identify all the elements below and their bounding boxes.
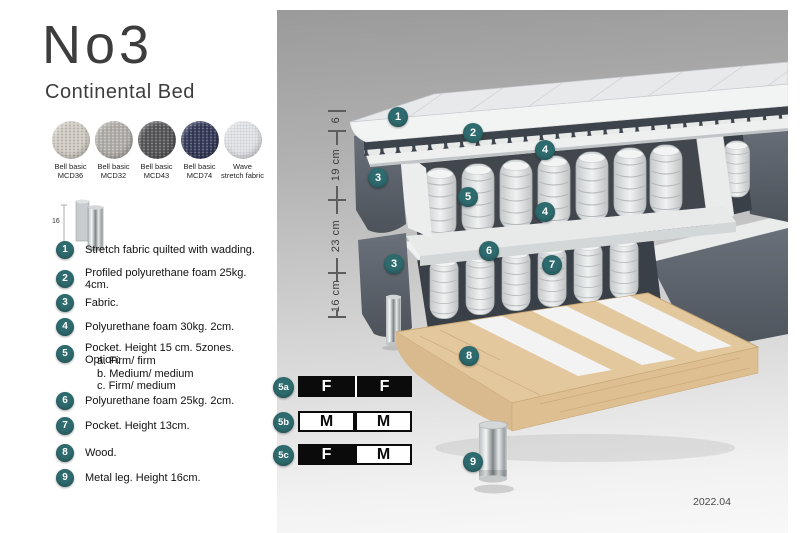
legend-text: Wood. [85,447,117,459]
fabric-swatch-label: Bell basicMCD32 [97,162,129,180]
legend-text: Polyurethane foam 25kg. 2cm. [85,395,234,407]
legend-badge: 9 [56,469,74,487]
legend-badge: 7 [56,417,74,435]
product-subtitle: Continental Bed [45,81,195,104]
base-side-fabric [358,233,412,337]
legend-item-1: 1 Stretch fabric quilted with wadding. [56,241,271,259]
legend-item-9: 9 Metal leg. Height 16cm. [56,469,271,487]
legend-badge: 1 [56,241,74,259]
fabric-swatch: Bell basicMCD32 [93,121,134,180]
legend-badge: 6 [56,392,74,410]
legend-text: Pocket. Height 13cm. [85,420,190,432]
legend-options: a. Firm/ firm b. Medium/ medium c. Firm/… [97,355,194,393]
fabric-swatch: Bell basicMCD36 [50,121,91,180]
legend-badge: 2 [56,270,74,288]
firmness-cell: M [298,411,355,432]
legend-text: Metal leg. Height 16cm. [85,472,201,484]
product-title: No3 [42,14,153,76]
fabric-swatch-image [95,121,133,159]
firmness-cell: M [355,444,412,465]
firmness-cell: F [355,376,412,397]
callout-3-upper: 3 [368,168,388,188]
fabric-swatch-image [138,121,176,159]
fabric-swatch-label: Bell basicMCD74 [183,162,215,180]
legend-badge: 3 [56,294,74,312]
callout-6: 6 [479,241,499,261]
firmness-row-5b: M M [298,411,412,432]
callout-3-base: 3 [384,254,404,274]
firmness-cell: F [298,444,355,465]
fabric-swatch: Wavestretch fabric [222,121,263,180]
legend-text: Polyurethane foam 30kg. 2cm. [85,321,234,333]
firmness-badge-5a: 5a [273,377,294,398]
fabric-swatch: Bell basicMCD43 [136,121,177,180]
legend-badge: 4 [56,318,74,336]
callout-1: 1 [388,107,408,127]
page: 6 19 cm 23 cm 16 cm 1 2 4 3 5 4 6 7 3 8 … [0,0,800,533]
fabric-swatch-list: Bell basicMCD36 Bell basicMCD32 Bell bas… [50,121,263,180]
dimension-label-leg: 16 cm [330,266,344,326]
firmness-badge-5c: 5c [273,445,294,466]
firmness-row-5a: F F [298,376,412,397]
legend-text: Profiled polyurethane foam 25kg. 4cm. [85,267,271,291]
callout-4-lower: 4 [535,202,555,222]
legend-item-6: 6 Polyurethane foam 25kg. 2cm. [56,392,271,410]
callout-7: 7 [542,255,562,275]
callout-2: 2 [463,123,483,143]
firmness-cell: F [298,376,355,397]
legend-badge: 8 [56,444,74,462]
fabric-swatch-label: Bell basicMCD43 [140,162,172,180]
legend-item-4: 4 Polyurethane foam 30kg. 2cm. [56,318,271,336]
callout-4-upper: 4 [535,140,555,160]
fabric-swatch-image [224,121,262,159]
firmness-badge-5b: 5b [273,412,294,433]
legend-item-8: 8 Wood. [56,444,271,462]
legend-text: Stretch fabric quilted with wadding. [85,244,255,256]
version-label: 2022.04 [693,496,731,508]
legend-badge: 5 [56,345,74,363]
leg-height-value: 16 [52,218,60,225]
option-line: b. Medium/ medium [97,368,194,381]
legend-item-7: 7 Pocket. Height 13cm. [56,417,271,435]
option-line: a. Firm/ firm [97,355,194,368]
option-line: c. Firm/ medium [97,380,194,393]
legend-item-3: 3 Fabric. [56,294,271,312]
callout-5: 5 [458,187,478,207]
firmness-row-5c: F M [298,444,412,465]
fabric-swatch-label: Bell basicMCD36 [54,162,86,180]
fabric-swatch-label: Wavestretch fabric [221,162,264,180]
legend-text: Fabric. [85,297,119,309]
callout-8: 8 [459,346,479,366]
callout-9: 9 [463,452,483,472]
fabric-swatch: Bell basicMCD74 [179,121,220,180]
fabric-swatch-image [52,121,90,159]
dimension-label-base: 23 cm [330,206,344,266]
fabric-swatch-image [181,121,219,159]
legend-item-2: 2 Profiled polyurethane foam 25kg. 4cm. [56,267,271,291]
dimension-label-upper: 19 cm [330,135,344,195]
firmness-cell: M [355,411,412,432]
